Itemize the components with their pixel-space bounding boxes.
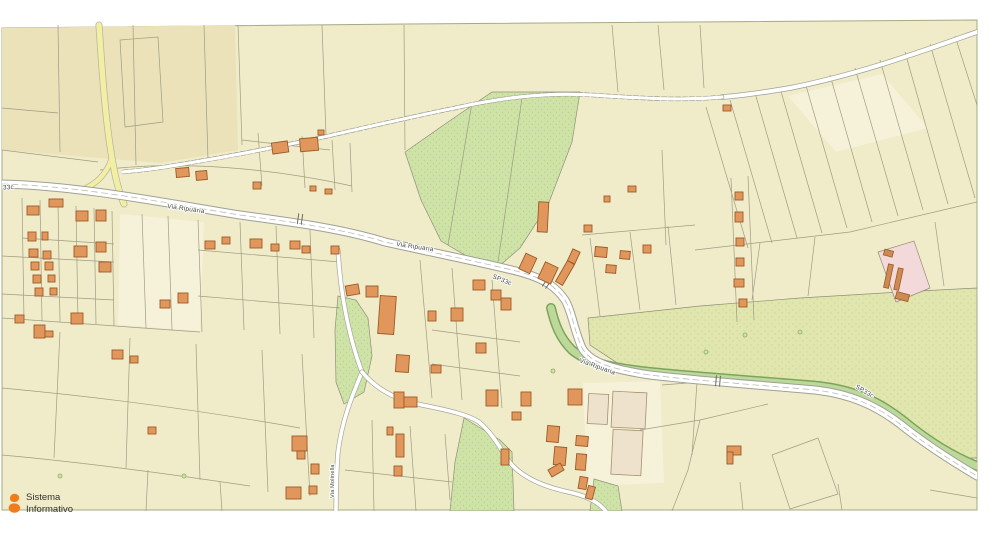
watermark-line1: Sistema: [26, 492, 61, 503]
road-label-sp33c-left: SP33c: [0, 184, 15, 192]
map-canvas[interactable]: SP33c Via Ripuaria Via Ripuaria SP33c Vi…: [0, 0, 993, 536]
watermark-line2: Informativo: [26, 504, 73, 515]
map-viewport[interactable]: SP33c Via Ripuaria Via Ripuaria SP33c Vi…: [0, 0, 993, 536]
road-label-via-molinella: Via Molinella: [330, 464, 336, 498]
